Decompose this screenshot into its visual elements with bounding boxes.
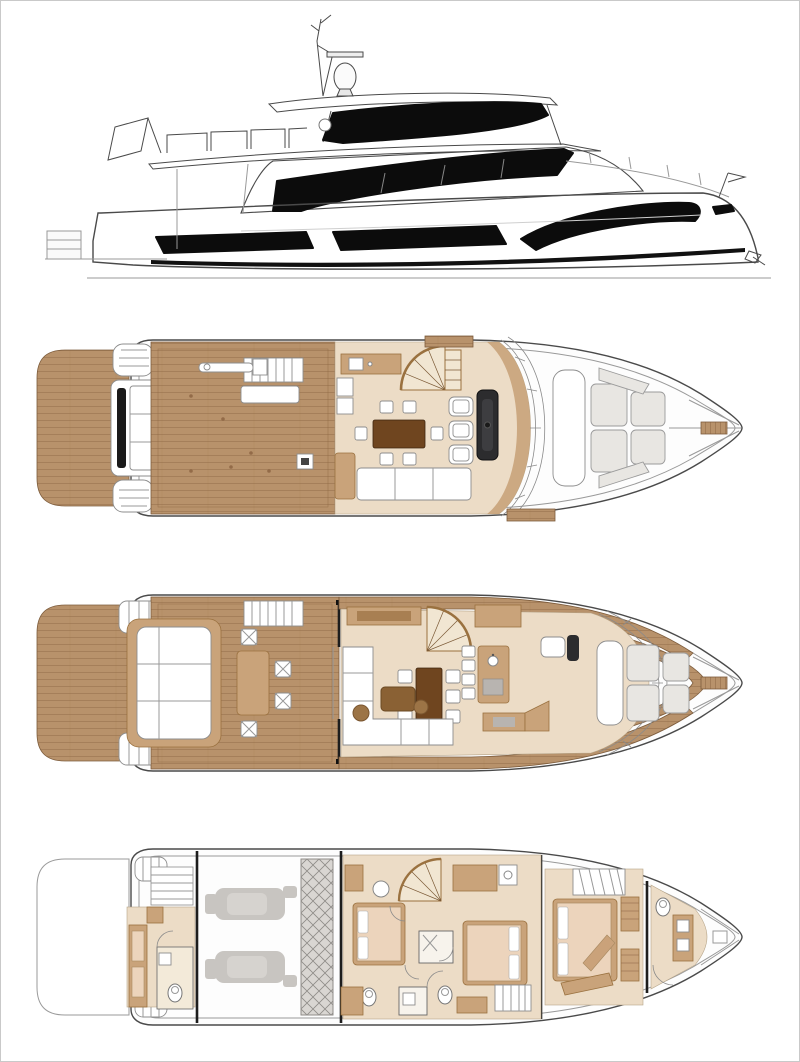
hull-window-forward bbox=[521, 203, 700, 250]
bow-flag-staff bbox=[719, 173, 745, 197]
wardrobe bbox=[453, 865, 497, 891]
side-step-port bbox=[425, 336, 473, 347]
radar-mast bbox=[311, 15, 363, 96]
aft-railing bbox=[167, 128, 307, 153]
transom-sofa bbox=[127, 619, 221, 747]
flybridge-glass bbox=[323, 102, 548, 143]
companionway bbox=[573, 869, 625, 895]
coffee-table bbox=[381, 687, 415, 711]
anchor-windlass bbox=[701, 677, 727, 689]
wardrobe-aft bbox=[621, 949, 639, 981]
hull-window-aft bbox=[156, 232, 313, 253]
flybridge-stairs bbox=[244, 601, 303, 626]
forward-head bbox=[651, 885, 707, 989]
galley-back-counter bbox=[475, 605, 521, 627]
helm-console bbox=[477, 390, 498, 460]
porthole bbox=[373, 881, 389, 897]
chaise-lounger bbox=[335, 453, 355, 499]
drawing-sheet bbox=[0, 0, 800, 1062]
helm-station bbox=[541, 635, 579, 661]
engine-port bbox=[205, 886, 297, 920]
bow-rail-stanchions bbox=[589, 151, 701, 185]
bow-port-light bbox=[713, 205, 734, 214]
crew-wardrobe bbox=[147, 907, 163, 923]
anchor-windlass bbox=[701, 422, 727, 434]
hull-window-mid bbox=[333, 226, 506, 250]
wardrobe bbox=[345, 865, 363, 891]
pouf-2 bbox=[414, 700, 428, 714]
swim-platform bbox=[37, 605, 129, 761]
main-deck-plan bbox=[37, 595, 742, 771]
sideboard-top bbox=[357, 611, 411, 621]
flybridge-sofa bbox=[357, 468, 471, 500]
deck-door-panel bbox=[297, 454, 313, 469]
flybridge-deck-plan bbox=[37, 336, 742, 521]
profile-view bbox=[45, 15, 771, 278]
builder-logo bbox=[319, 119, 331, 131]
pouf-1 bbox=[353, 705, 369, 721]
fuel-tank bbox=[301, 859, 333, 1015]
side-step-starboard bbox=[507, 509, 555, 521]
forward-cabin bbox=[545, 869, 643, 1005]
stern-flag bbox=[108, 118, 161, 160]
bow-railing bbox=[566, 161, 729, 197]
bow-lounge-backrest bbox=[597, 641, 623, 725]
wardrobe-fwd bbox=[621, 897, 639, 931]
galley-island bbox=[478, 646, 509, 703]
mid-shower-room bbox=[419, 931, 453, 963]
lower-deck-plan bbox=[37, 849, 742, 1025]
stairs-to-galley bbox=[495, 985, 531, 1011]
guest-cabin-mid bbox=[453, 865, 527, 985]
stern-ladder bbox=[45, 231, 167, 259]
sunpad-backrest bbox=[553, 370, 585, 486]
swim-platform-outline bbox=[37, 859, 129, 1015]
helm-seats bbox=[449, 397, 473, 464]
yacht-plans-figure bbox=[1, 1, 799, 1061]
deck-locker bbox=[241, 386, 299, 403]
